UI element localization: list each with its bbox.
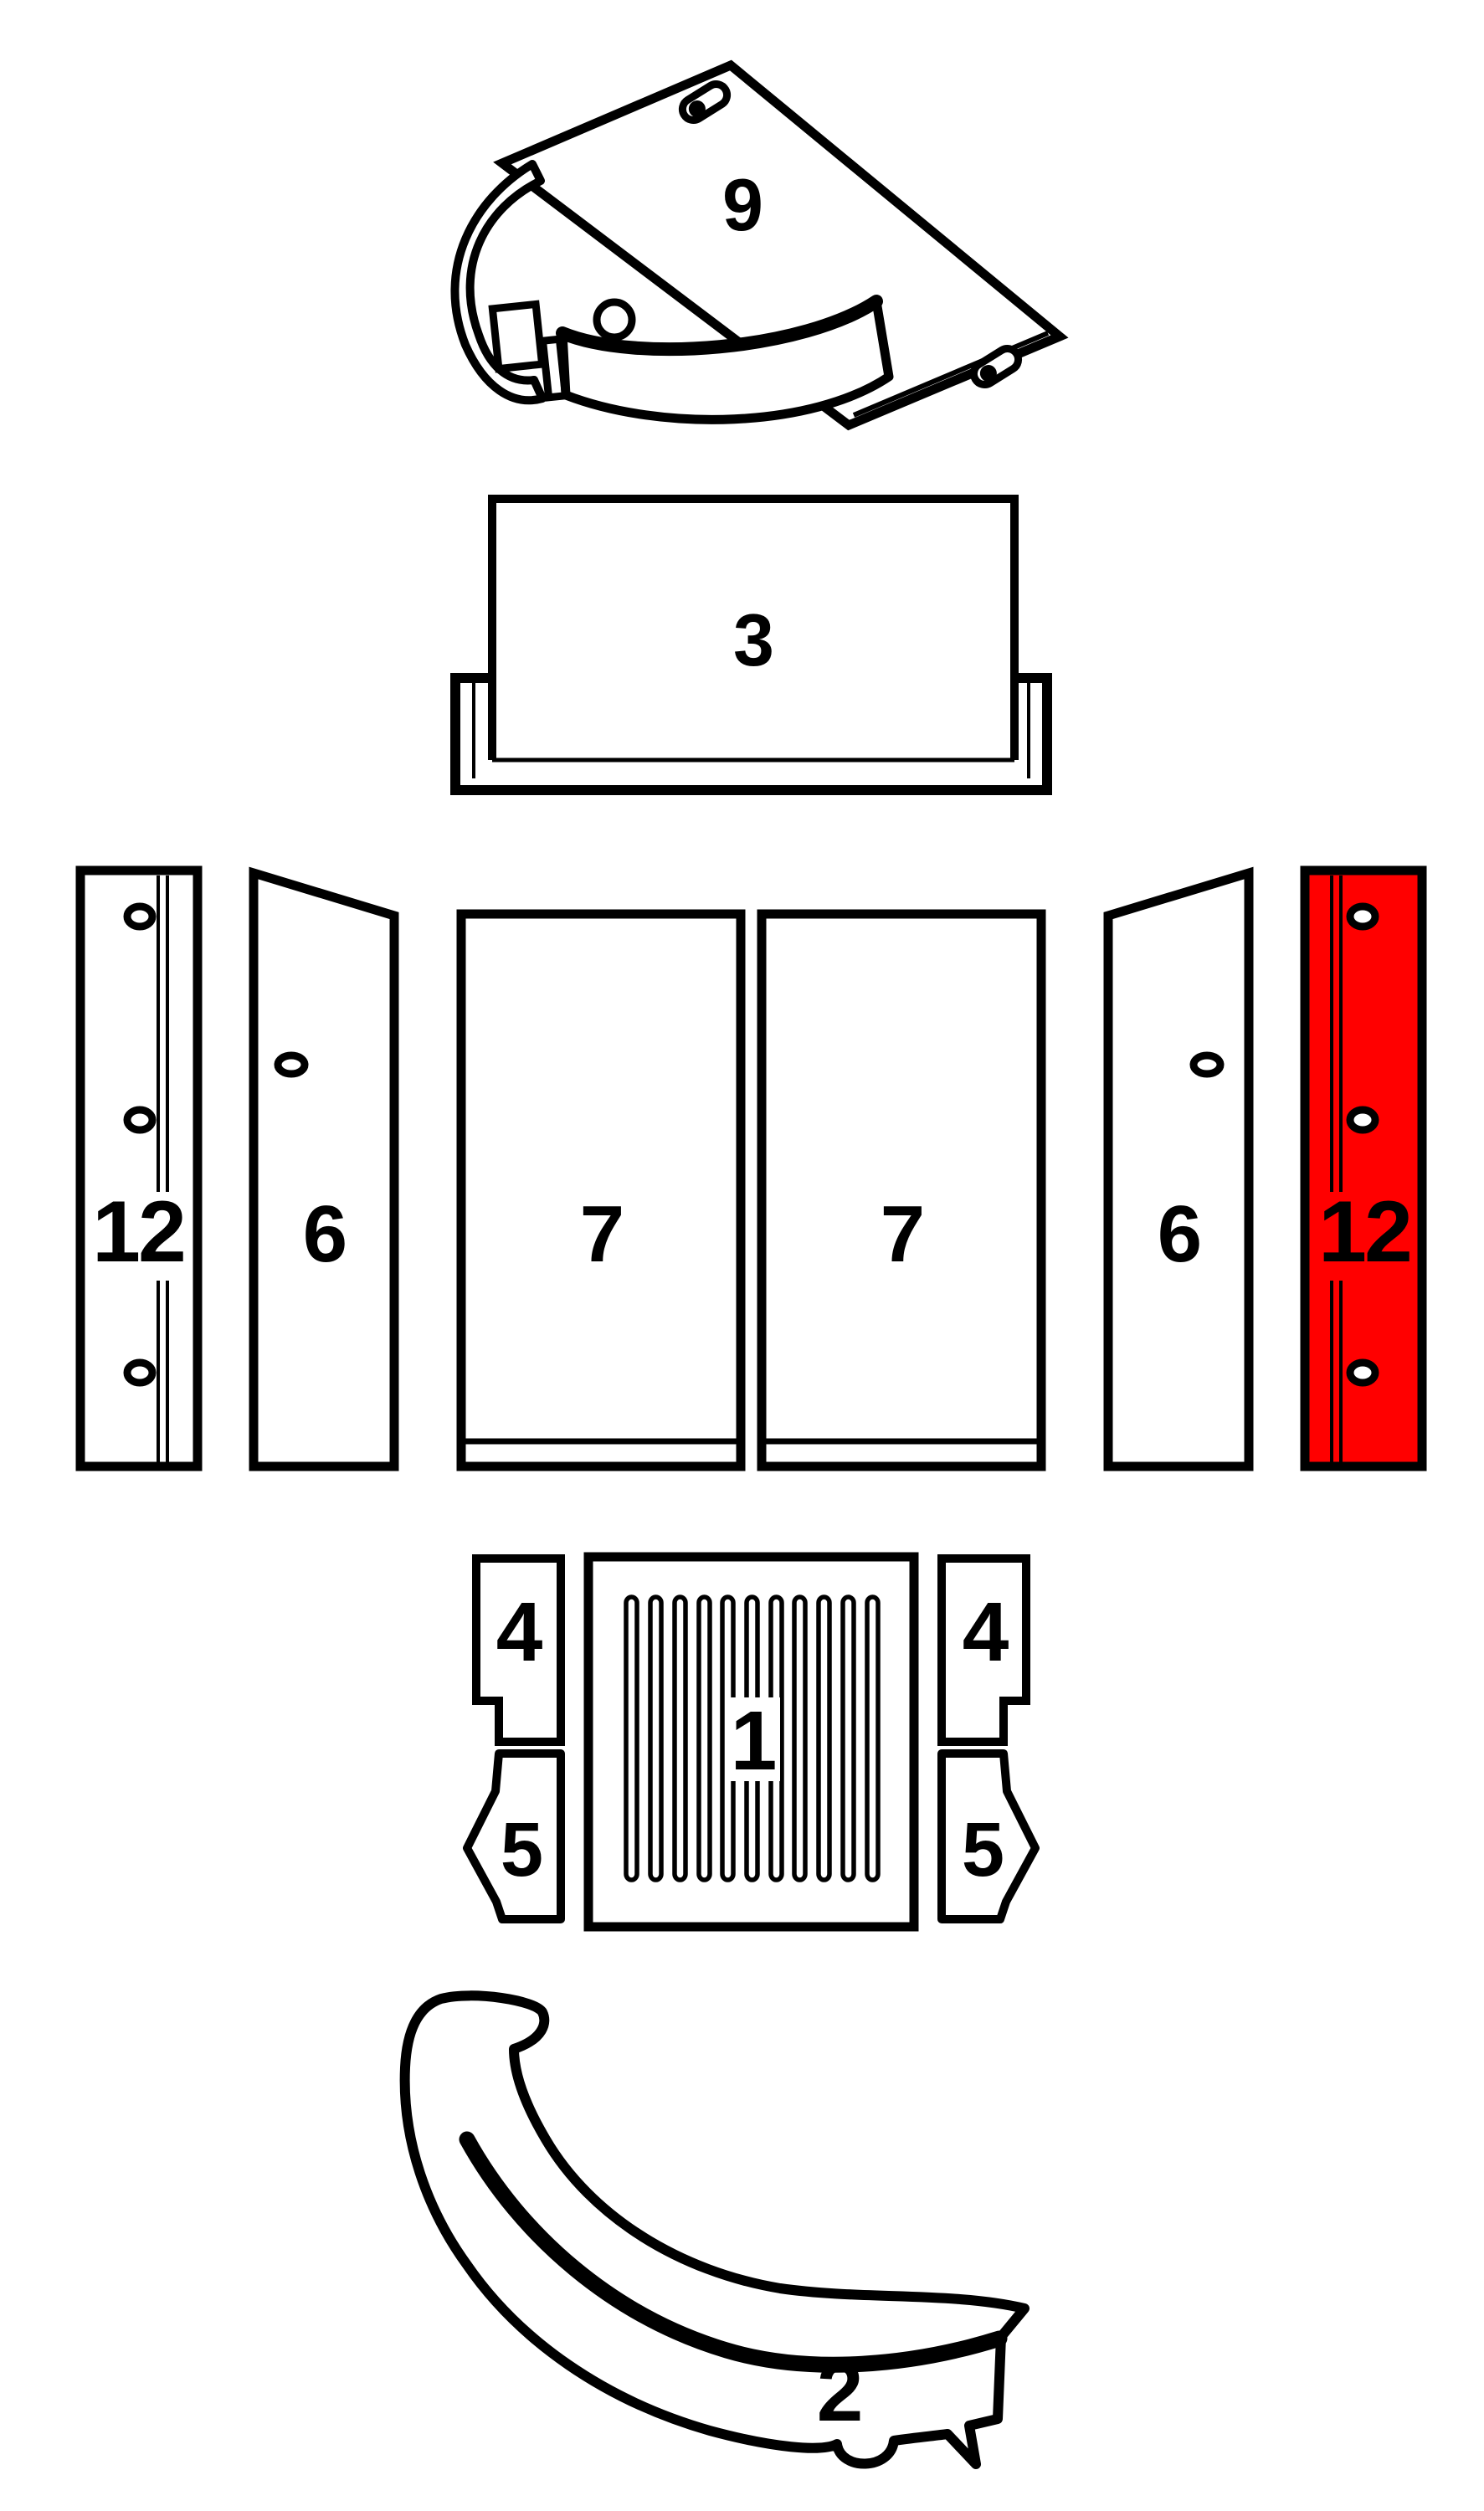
part-front-block-4-right: 4 (942, 1558, 1026, 1742)
part-label: 6 (1158, 1189, 1199, 1279)
exploded-parts-diagram: 9 3 12 6 7 7 6 (0, 0, 1484, 2511)
screw-hole (1350, 1110, 1375, 1130)
part-baffle-plate-9: 9 (454, 65, 1060, 425)
part-grate-1: 1 (588, 1557, 914, 1927)
screw-hole (127, 906, 152, 927)
part-back-liner-3: 3 (455, 499, 1047, 790)
part-corner-block-5-right: 5 (942, 1754, 1035, 1919)
part-label: 6 (303, 1189, 345, 1279)
part-back-panel-7-right: 7 (762, 914, 1041, 1466)
panel-body (1108, 873, 1249, 1466)
part-label: 4 (963, 1585, 1009, 1679)
part-side-strip-12-left: 12 (80, 870, 198, 1466)
arch-body (405, 1995, 1024, 2464)
screw-hole (1350, 906, 1375, 927)
panel-body (254, 873, 394, 1466)
part-side-panel-6-left: 6 (254, 873, 394, 1466)
screw-hole (127, 1363, 152, 1383)
part-front-arch-2: 2 (405, 1995, 1024, 2464)
part-label: 9 (722, 163, 761, 246)
part-front-block-4-left: 4 (476, 1558, 561, 1742)
screw-hole (1350, 1363, 1375, 1383)
part-label: 1 (731, 1694, 775, 1788)
pin-hole (597, 302, 632, 337)
part-corner-block-5-left: 5 (467, 1754, 561, 1919)
part-side-panel-6-right: 6 (1108, 873, 1249, 1466)
part-label: 7 (881, 1189, 922, 1279)
part-label: 7 (580, 1189, 622, 1279)
part-label: 5 (501, 1807, 542, 1892)
screw-hole (278, 1055, 305, 1074)
part-label: 12 (92, 1184, 184, 1281)
parts-diagram-page: 9 3 12 6 7 7 6 (0, 0, 1484, 2511)
screw-hole (1194, 1055, 1220, 1074)
part-label: 12 (1318, 1184, 1410, 1281)
part-label: 4 (496, 1585, 543, 1679)
part-side-strip-12-right-highlighted: 12 (1305, 870, 1422, 1466)
screw-hole (127, 1110, 152, 1130)
part-label: 2 (817, 2345, 861, 2439)
part-back-panel-7-left: 7 (461, 914, 741, 1466)
part-label: 3 (733, 598, 772, 681)
part-label: 5 (962, 1807, 1003, 1892)
mount-tab (492, 304, 542, 368)
